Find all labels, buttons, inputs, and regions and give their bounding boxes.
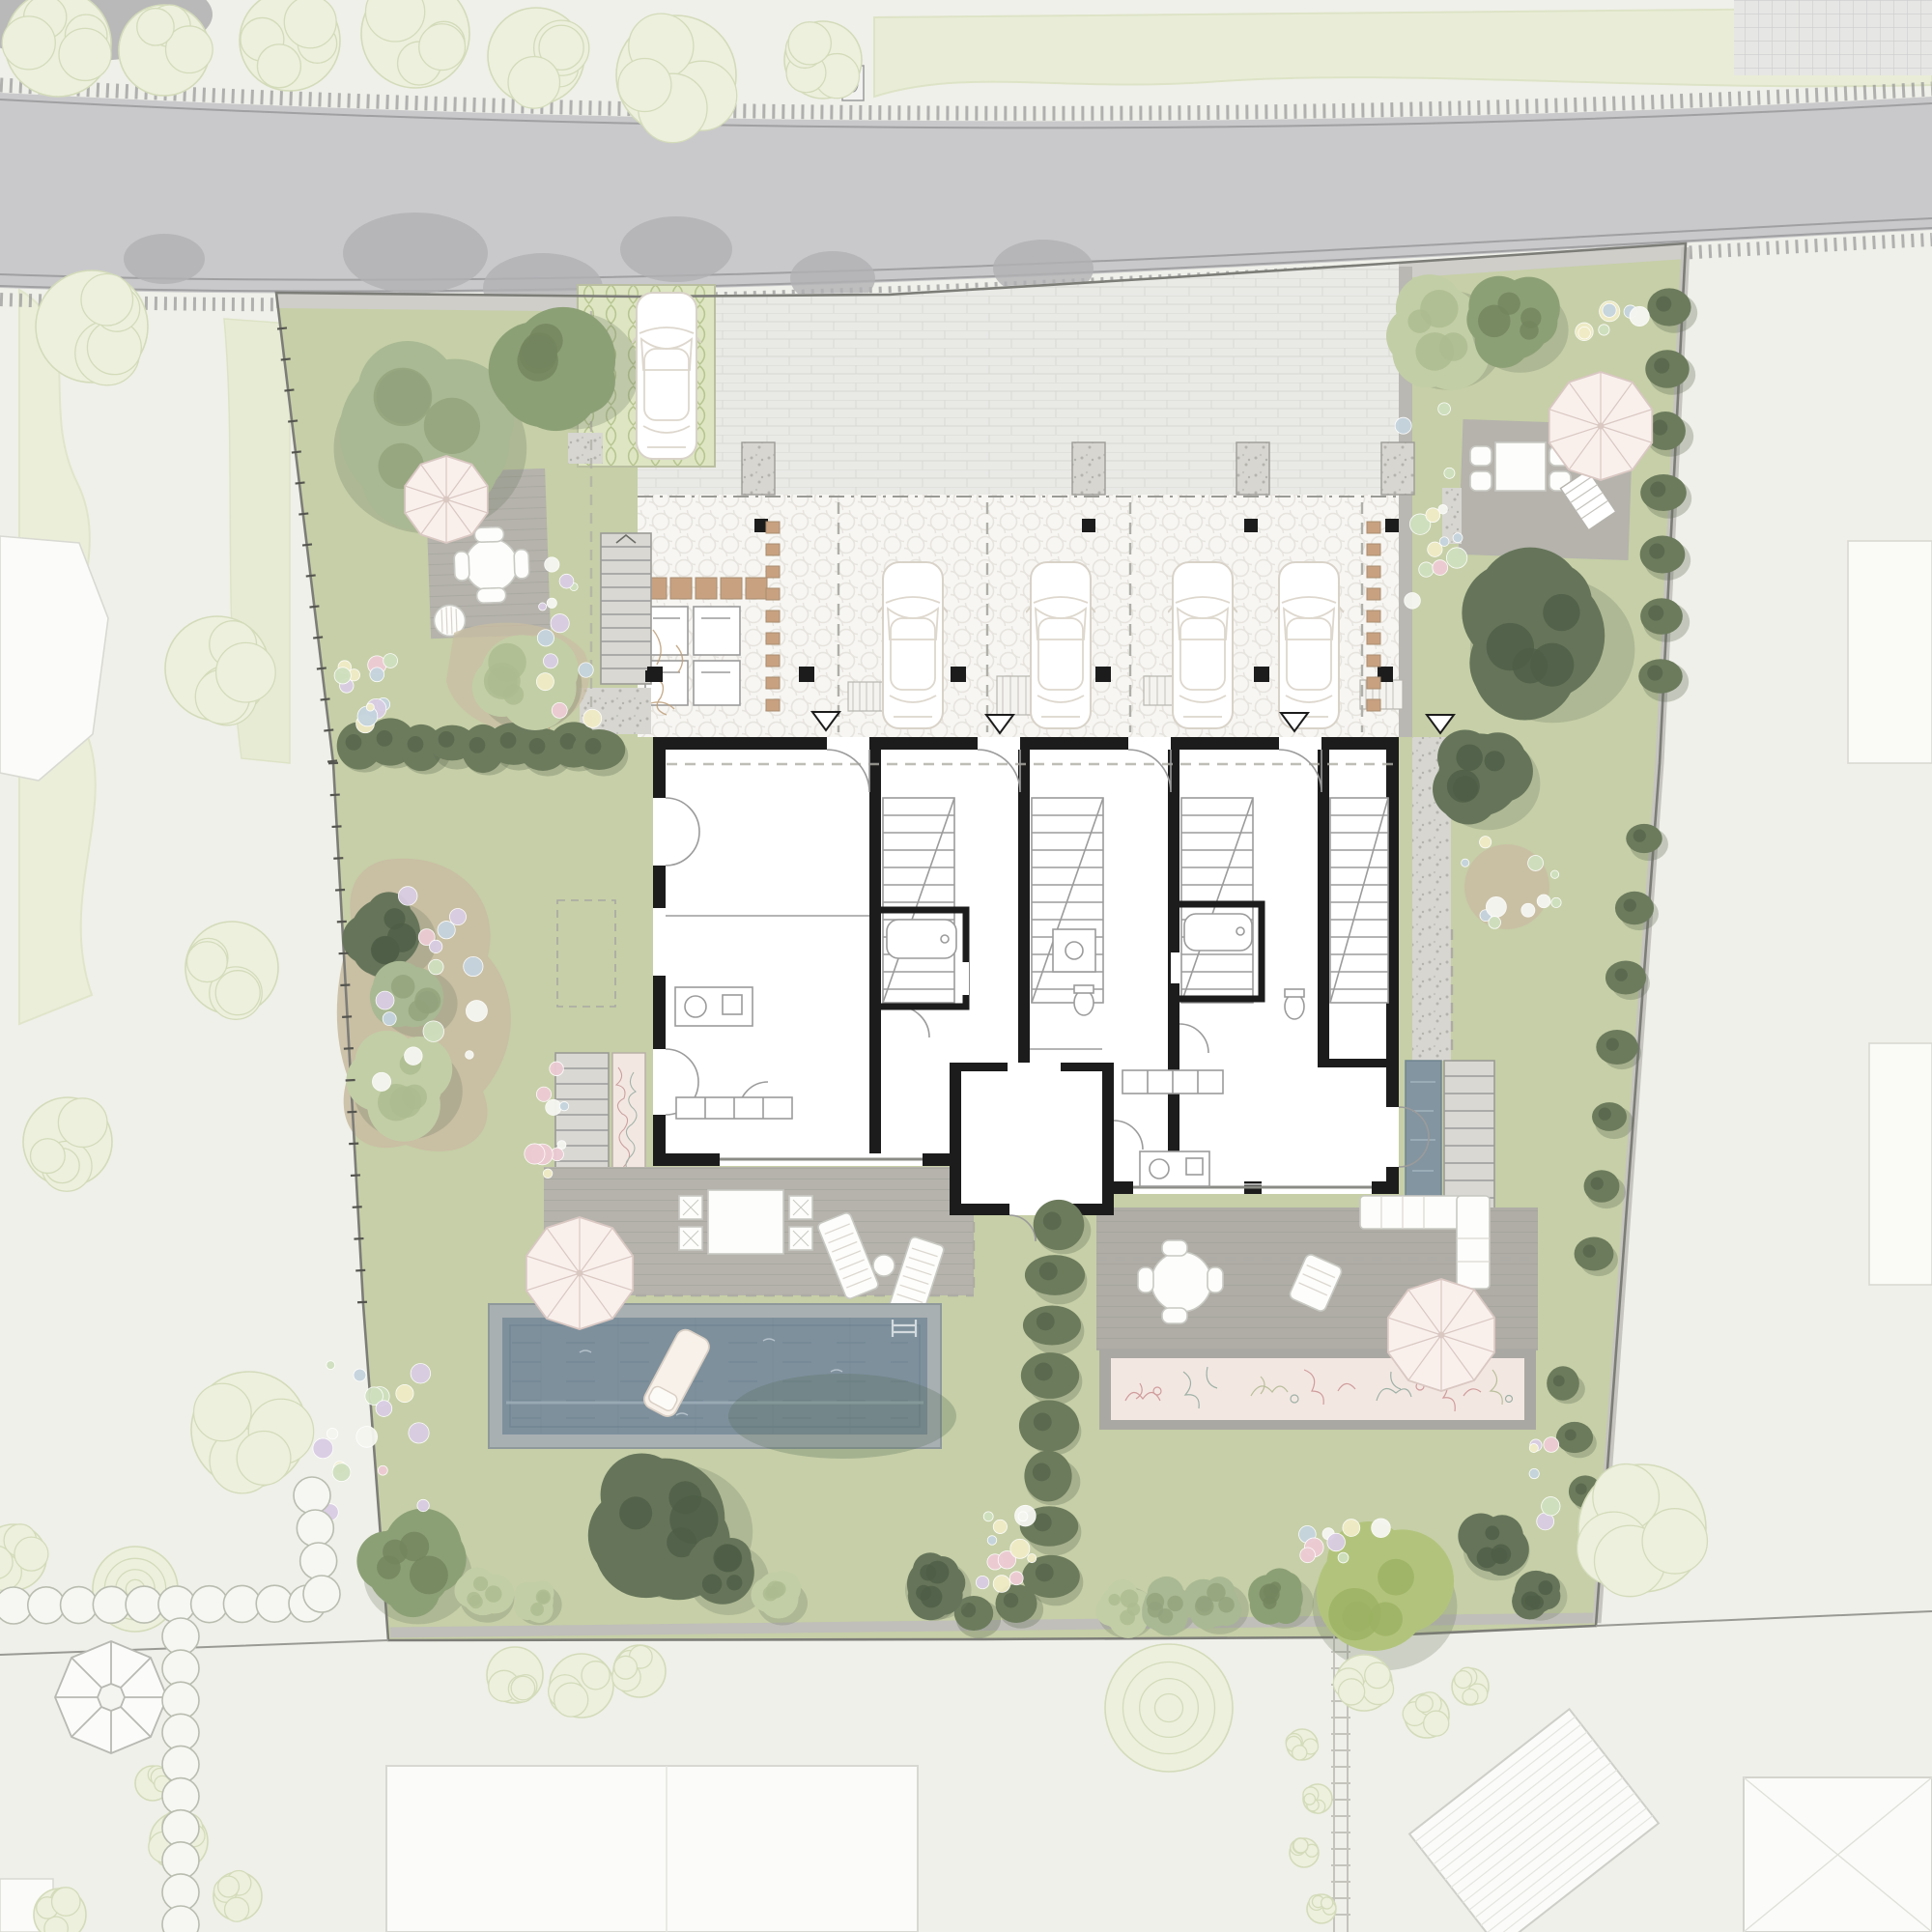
- fence-post-tick: [306, 575, 316, 576]
- car: [632, 293, 701, 459]
- fence-post-tick: [354, 1238, 363, 1239]
- stepping-stone: [162, 1650, 199, 1687]
- fence-post-tick: [339, 953, 349, 954]
- tree-outline: [240, 0, 340, 91]
- bike-rack: [766, 655, 780, 667]
- fence-post-tick: [346, 1080, 355, 1081]
- stepping-stone: [300, 1543, 337, 1579]
- fence-post-tick: [355, 1270, 365, 1271]
- bike-rack: [766, 699, 780, 711]
- bike-rack: [1367, 611, 1380, 622]
- tree-outline: [549, 1654, 613, 1718]
- pillar-base: [1082, 519, 1095, 532]
- carport-column: [951, 667, 966, 682]
- fence-post-tick: [330, 795, 340, 796]
- fence-post-tick: [333, 858, 343, 859]
- fence-post-tick: [284, 389, 294, 390]
- tree-outline: [1286, 1729, 1318, 1760]
- fence-post-tick: [353, 1207, 362, 1207]
- bike-rack: [766, 611, 780, 622]
- pillar-base: [1385, 519, 1399, 532]
- bike-rack: [766, 633, 780, 644]
- fence-post-tick: [347, 1112, 356, 1113]
- bike-rack: [766, 522, 780, 533]
- fence-post-tick: [317, 668, 327, 668]
- neighbor-house-east2: [1869, 1043, 1932, 1285]
- bike-rack: [1367, 677, 1380, 689]
- car: [1274, 562, 1344, 728]
- crosswalk-hatch-corner: [1734, 0, 1932, 75]
- stepping-stone: [256, 1585, 293, 1622]
- stepping-stone: [162, 1842, 199, 1879]
- tree-outline: [487, 1647, 543, 1703]
- pool: [489, 1304, 956, 1459]
- bike-rack: [1367, 633, 1380, 644]
- speckled-pillar: [1381, 442, 1414, 495]
- tree-outline: [213, 1871, 262, 1922]
- stepping-stone: [162, 1874, 199, 1911]
- tree-outline: [1303, 1784, 1332, 1813]
- bike-rack: [766, 677, 780, 689]
- bike-rack: [766, 544, 780, 555]
- bike-rack: [1367, 699, 1380, 711]
- fence-post-tick: [344, 1048, 354, 1049]
- stepping-stone: [223, 1585, 260, 1622]
- carport-column: [1254, 667, 1269, 682]
- bike-rack: [1367, 588, 1380, 600]
- site-plan-drawing: [0, 0, 1932, 1932]
- wardrobe-row2: [676, 1097, 792, 1119]
- fence-post-tick: [321, 698, 330, 699]
- fence-post-tick: [327, 760, 337, 761]
- stepping-stone: [126, 1586, 162, 1623]
- stepping-stone: [28, 1587, 65, 1624]
- fence-post-tick: [337, 922, 347, 923]
- tree-mid: [1466, 276, 1568, 373]
- carport-column: [1095, 667, 1111, 682]
- carport-column: [647, 667, 663, 682]
- fence-post-tick: [313, 637, 323, 638]
- tree-outline: [784, 21, 862, 99]
- fence-post-tick: [335, 890, 345, 891]
- car: [1026, 562, 1095, 728]
- wardrobe-row: [1122, 1070, 1223, 1094]
- fence-post-tick: [302, 544, 312, 545]
- speckled-pillar: [742, 442, 775, 495]
- stepping-stone: [162, 1618, 199, 1655]
- tree-outline: [612, 1645, 666, 1697]
- stepping-stone: [162, 1746, 199, 1782]
- tree-outline: [1452, 1667, 1489, 1705]
- fence-post-tick: [340, 984, 350, 985]
- parasol: [526, 1217, 633, 1329]
- fence-post-tick: [351, 1175, 360, 1176]
- stepping-stone: [303, 1576, 340, 1612]
- fence-post-tick: [288, 420, 298, 421]
- bike-rack: [766, 588, 780, 600]
- tree-outline: [1290, 1838, 1319, 1867]
- fence-post-tick: [296, 482, 305, 483]
- fence-post-tick: [292, 451, 301, 452]
- fence-post-tick: [324, 729, 333, 730]
- gravel-pad-small: [568, 433, 603, 464]
- building-floor-plan: [653, 737, 1429, 1241]
- tree-shadow-on-pool: [728, 1374, 956, 1459]
- fence-post-tick: [328, 763, 338, 764]
- fence-post-tick: [298, 513, 308, 514]
- parasol: [1549, 372, 1653, 480]
- fence-post-tick: [357, 1302, 367, 1303]
- parasol: [405, 456, 488, 543]
- carport-column: [799, 667, 814, 682]
- bike-rack: [1367, 655, 1380, 667]
- water-rill: [1406, 1061, 1441, 1213]
- pillar-base: [1244, 519, 1258, 532]
- bike-rack: [1367, 544, 1380, 555]
- site-plan-canvas: [0, 0, 1932, 1932]
- speckled-pillar: [1236, 442, 1269, 495]
- stepping-stone: [61, 1587, 98, 1624]
- fence-post-tick: [309, 606, 319, 607]
- stepping-stone: [162, 1682, 199, 1719]
- neighbor-house-south: [386, 1766, 918, 1932]
- stepping-stone: [191, 1586, 228, 1623]
- fence-post-tick: [281, 358, 291, 359]
- stepping-stone: [297, 1510, 333, 1547]
- stepping-stone: [93, 1586, 129, 1623]
- stepping-stone: [162, 1778, 199, 1815]
- car: [1168, 562, 1237, 728]
- fence-post-tick: [332, 826, 342, 827]
- speckled-pillar: [1072, 442, 1105, 495]
- gazebo-octagon: [55, 1641, 167, 1753]
- kitchen-island-west: [675, 987, 753, 1026]
- bike-rack: [766, 566, 780, 578]
- bike-rack: [1367, 566, 1380, 578]
- fence-post-tick: [342, 1016, 352, 1017]
- fence-post-tick: [277, 327, 287, 328]
- stepping-stone: [158, 1586, 195, 1623]
- neighbor-house-east1: [1848, 541, 1932, 763]
- tree-outline: [1307, 1894, 1336, 1923]
- stepping-stone: [162, 1810, 199, 1847]
- neighbor-house-corner-hip: [1744, 1777, 1932, 1932]
- kitchen-island-east: [1140, 1151, 1209, 1186]
- right-garden-stair: [1444, 1061, 1494, 1213]
- stepping-stone: [162, 1714, 199, 1750]
- tree-rose: [1105, 1644, 1233, 1772]
- parasol: [1388, 1279, 1494, 1391]
- stepping-stone: [294, 1477, 330, 1514]
- fence-post-tick: [349, 1144, 358, 1145]
- bike-rack: [1367, 522, 1380, 533]
- car: [878, 562, 948, 728]
